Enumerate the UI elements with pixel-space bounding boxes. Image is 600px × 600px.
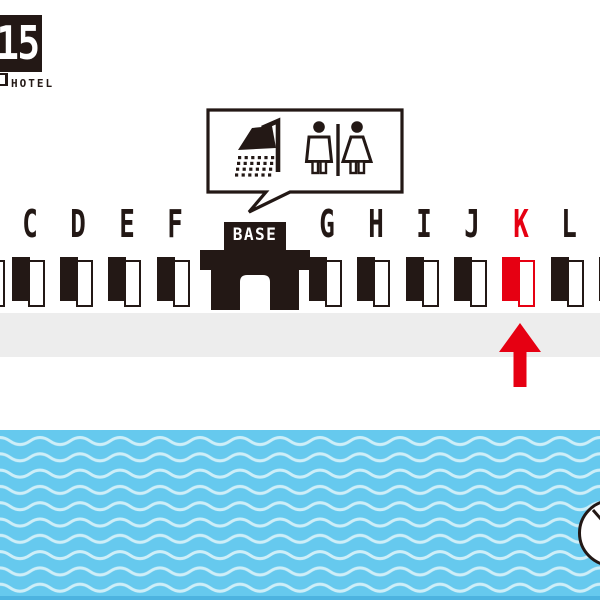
room-block-outline-C [28, 260, 45, 307]
brand-logo: 15 [0, 15, 42, 72]
room-letter-K: K [513, 205, 529, 243]
room-letter-I: I [416, 205, 432, 243]
brand-caption-text: HOTEL [11, 77, 54, 90]
brand-caption-partial-glyph [0, 73, 8, 86]
room-letter-L: L [561, 205, 577, 243]
room-block-outline-L [567, 260, 584, 307]
room-block-outline-H [373, 260, 390, 307]
room-block-outline-E [124, 260, 141, 307]
sea [0, 430, 600, 600]
room-letter-G: G [319, 205, 335, 243]
hotel-beach-map: 15 HOTEL [0, 0, 600, 600]
room-letter-E: E [119, 205, 135, 243]
room-block-outline-D [76, 260, 93, 307]
base-building-label: BASE [233, 226, 278, 244]
room-block-outline-I [422, 260, 439, 307]
highlight-arrow [499, 323, 541, 387]
room-block-outline-K [518, 260, 535, 307]
room-letter-C: C [22, 205, 38, 243]
speech-bubble-outline [208, 110, 402, 212]
badge-mark [581, 502, 600, 564]
brand-logo-glyphs: 15 [0, 19, 38, 67]
room-letter-F: F [167, 205, 183, 243]
room-block-outline-F [173, 260, 190, 307]
sea-bottom-edge [0, 596, 600, 600]
edge-badge-circle [578, 499, 600, 567]
room-block-outline-partial-left [0, 260, 5, 307]
room-letter-D: D [70, 205, 86, 243]
room-letter-H: H [368, 205, 384, 243]
wave-pattern [0, 430, 600, 600]
brand-caption: HOTEL [0, 73, 54, 85]
room-letter-J: J [464, 205, 480, 243]
room-block-outline-J [470, 260, 487, 307]
amenities-callout [200, 100, 415, 218]
room-block-outline-G [325, 260, 342, 307]
